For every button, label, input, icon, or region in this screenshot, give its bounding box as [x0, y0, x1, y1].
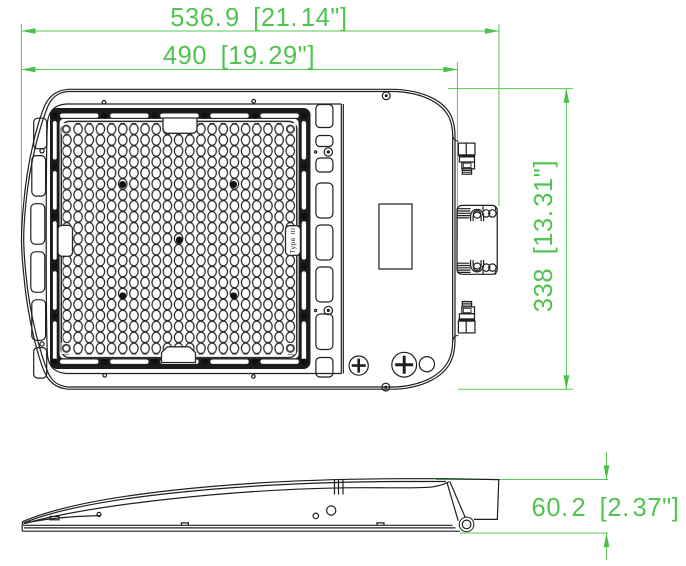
svg-text:536. 9 [21. 14"]: 536. 9 [21. 14"] [170, 4, 348, 32]
svg-text:60. 2 [2. 37"]: 60. 2 [2. 37"] [532, 494, 680, 522]
svg-text:490 [19. 29"]: 490 [19. 29"] [163, 42, 315, 70]
svg-text:338 [13. 31"]: 338 [13. 31"] [530, 160, 558, 312]
svg-text:Type III: Type III [290, 227, 297, 253]
